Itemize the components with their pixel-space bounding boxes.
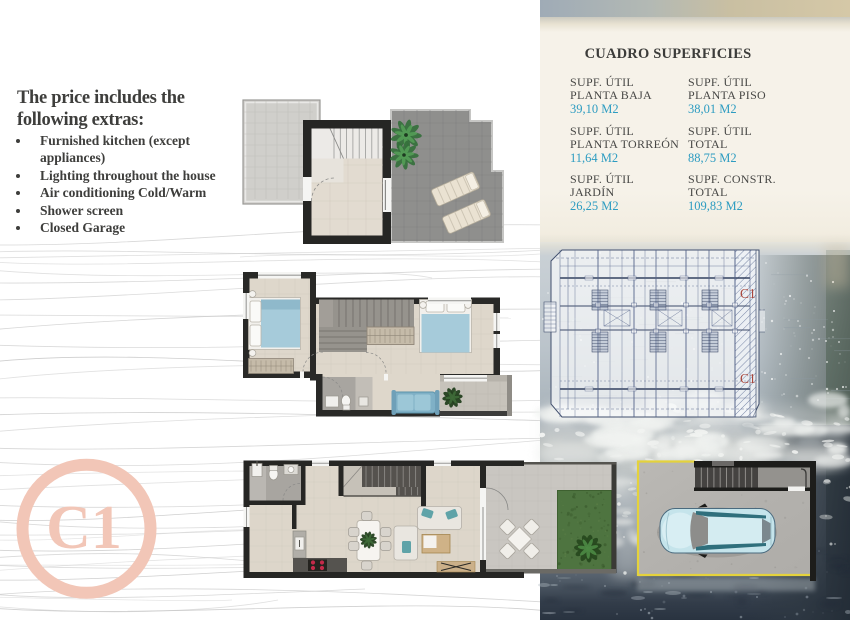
svg-text:C1: C1 <box>740 286 756 301</box>
svg-text:C1: C1 <box>740 371 756 386</box>
